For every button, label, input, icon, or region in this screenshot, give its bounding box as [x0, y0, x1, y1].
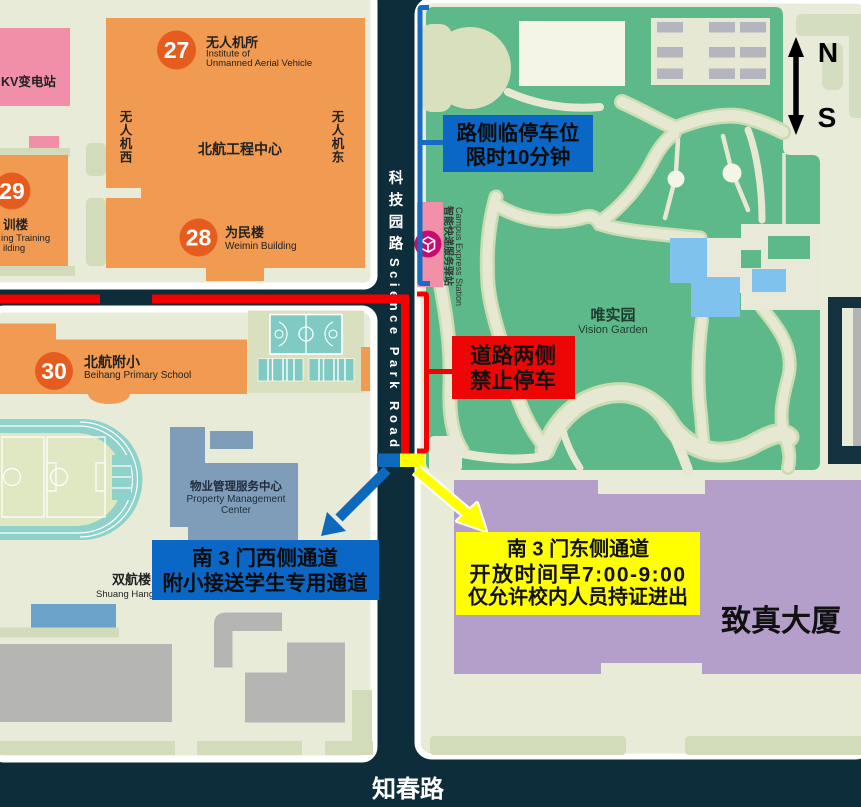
svg-text:Beihang Primary School: Beihang Primary School [84, 370, 191, 381]
svg-text:禁止停车: 禁止停车 [470, 368, 556, 393]
svg-text:技: 技 [389, 191, 404, 209]
svg-text:致真大厦: 致真大厦 [721, 605, 841, 638]
svg-text:Science Park Road: Science Park Road [387, 258, 402, 452]
svg-text:开放时间早7:00-9:00: 开放时间早7:00-9:00 [469, 563, 686, 587]
svg-text:S: S [818, 102, 837, 133]
svg-text:知春路: 知春路 [372, 775, 445, 803]
svg-text:27: 27 [164, 37, 190, 63]
svg-text:人: 人 [332, 123, 345, 138]
svg-text:Shuang Hang: Shuang Hang [96, 589, 154, 600]
svg-text:Campus Express Station: Campus Express Station [454, 207, 464, 306]
svg-text:Unmanned Aerial Vehicle: Unmanned Aerial Vehicle [206, 58, 312, 69]
svg-text:南 3 门东侧通道: 南 3 门东侧通道 [507, 537, 649, 561]
svg-text:机: 机 [332, 136, 345, 151]
svg-text:29: 29 [0, 178, 25, 204]
svg-text:科: 科 [389, 169, 404, 187]
svg-text:Vision Garden: Vision Garden [578, 324, 648, 336]
svg-text:唯实园: 唯实园 [590, 306, 635, 324]
svg-text:Property Management: Property Management [187, 494, 286, 505]
svg-text:KV变电站: KV变电站 [1, 74, 56, 89]
svg-text:路侧临停车位: 路侧临停车位 [457, 121, 580, 145]
svg-text:东: 东 [332, 150, 345, 165]
svg-text:北航附小: 北航附小 [84, 354, 140, 370]
svg-text:无: 无 [331, 110, 345, 124]
svg-text:ilding: ilding [3, 243, 25, 254]
svg-text:仅允许校内人员持证进出: 仅允许校内人员持证进出 [468, 585, 688, 609]
svg-text:Center: Center [221, 505, 252, 516]
svg-text:智能快递服务驿站: 智能快递服务驿站 [442, 206, 455, 286]
svg-text:道路两侧: 道路两侧 [470, 343, 556, 368]
svg-text:人: 人 [120, 123, 133, 138]
svg-text:30: 30 [41, 358, 67, 384]
svg-text:限时10分钟: 限时10分钟 [466, 145, 571, 169]
svg-text:Weimin Building: Weimin Building [225, 241, 297, 252]
svg-text:机: 机 [120, 136, 133, 151]
svg-text:为民楼: 为民楼 [225, 225, 264, 240]
svg-text:南 3 门西侧通道: 南 3 门西侧通道 [192, 546, 338, 570]
svg-text:N: N [818, 37, 838, 68]
svg-text:双航楼: 双航楼 [112, 572, 151, 587]
svg-text:西: 西 [120, 151, 133, 165]
svg-text:园: 园 [389, 214, 404, 231]
svg-text:物业管理服务中心: 物业管理服务中心 [190, 479, 282, 493]
svg-text:28: 28 [186, 225, 212, 251]
svg-text:训楼: 训楼 [3, 217, 29, 232]
svg-text:附小接送学生专用通道: 附小接送学生专用通道 [163, 571, 368, 595]
svg-text:路: 路 [389, 235, 404, 253]
svg-text:无: 无 [119, 110, 133, 124]
svg-text:北航工程中心: 北航工程中心 [198, 141, 282, 157]
